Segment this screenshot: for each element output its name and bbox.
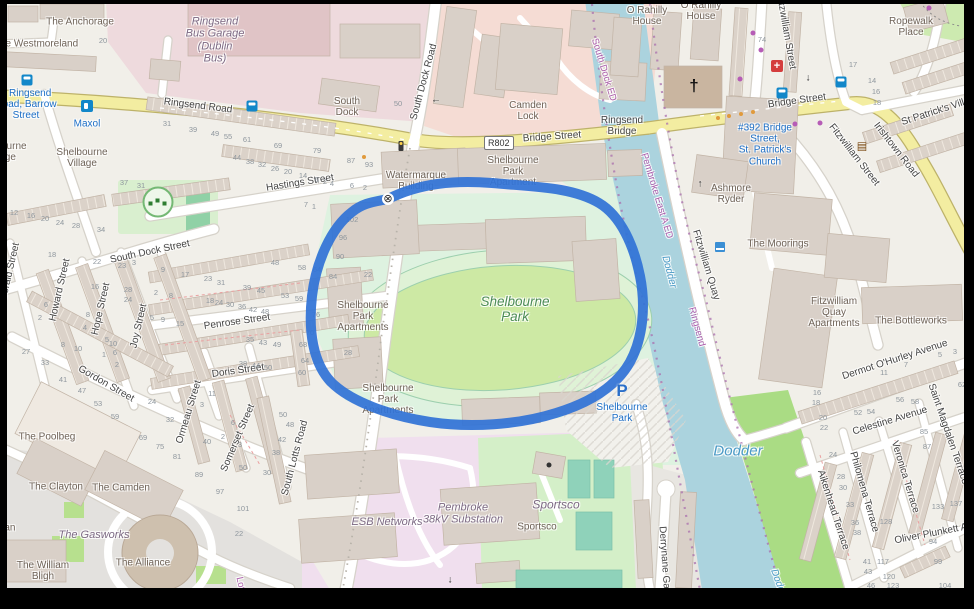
frame-top — [0, 0, 974, 4]
slipway-icon — [715, 242, 725, 252]
bus-stop-icon — [247, 101, 258, 112]
shop-dot-icon — [751, 31, 756, 36]
lamp-dot-icon — [727, 114, 731, 118]
church-icon: † — [689, 76, 698, 96]
playground-icon — [143, 187, 174, 218]
lamp-dot-icon — [716, 116, 720, 120]
bus-stop-icon — [777, 88, 788, 99]
arrow-icon: ↑ — [698, 179, 703, 190]
gate-icon: ⊗ — [382, 193, 394, 205]
traffic-signals-icon — [399, 141, 404, 151]
shop-dot-icon — [793, 122, 798, 127]
frame-left — [0, 0, 7, 609]
frame-bottom — [0, 588, 974, 609]
fuel-icon — [81, 100, 93, 112]
parking-icon: P — [616, 381, 627, 401]
map-icon-layer: ⊗†+▤P←↓↓↑ — [0, 0, 974, 609]
frame-right — [964, 0, 974, 609]
bus-stop-icon — [22, 75, 33, 86]
shop-dot-icon — [738, 77, 743, 82]
lamp-dot-icon — [751, 110, 755, 114]
lamp-dot-icon — [739, 112, 743, 116]
arrow-icon: ↓ — [448, 575, 453, 586]
pharmacy-icon: + — [771, 60, 783, 72]
library-icon: ▤ — [857, 140, 867, 153]
dot-black-icon — [547, 463, 552, 468]
bus-stop-icon — [836, 77, 847, 88]
screenshot-frame: Ringsend RoadBridge StreetRingsend Bridg… — [0, 0, 974, 609]
shop-dot-icon — [759, 48, 764, 53]
lamp-dot-icon — [362, 155, 366, 159]
shop-dot-icon — [818, 121, 823, 126]
shop-dot-icon — [927, 6, 932, 11]
arrow-icon: ↓ — [806, 73, 811, 84]
map-canvas[interactable]: Ringsend RoadBridge StreetRingsend Bridg… — [0, 0, 974, 609]
arrow-icon: ← — [431, 95, 441, 106]
